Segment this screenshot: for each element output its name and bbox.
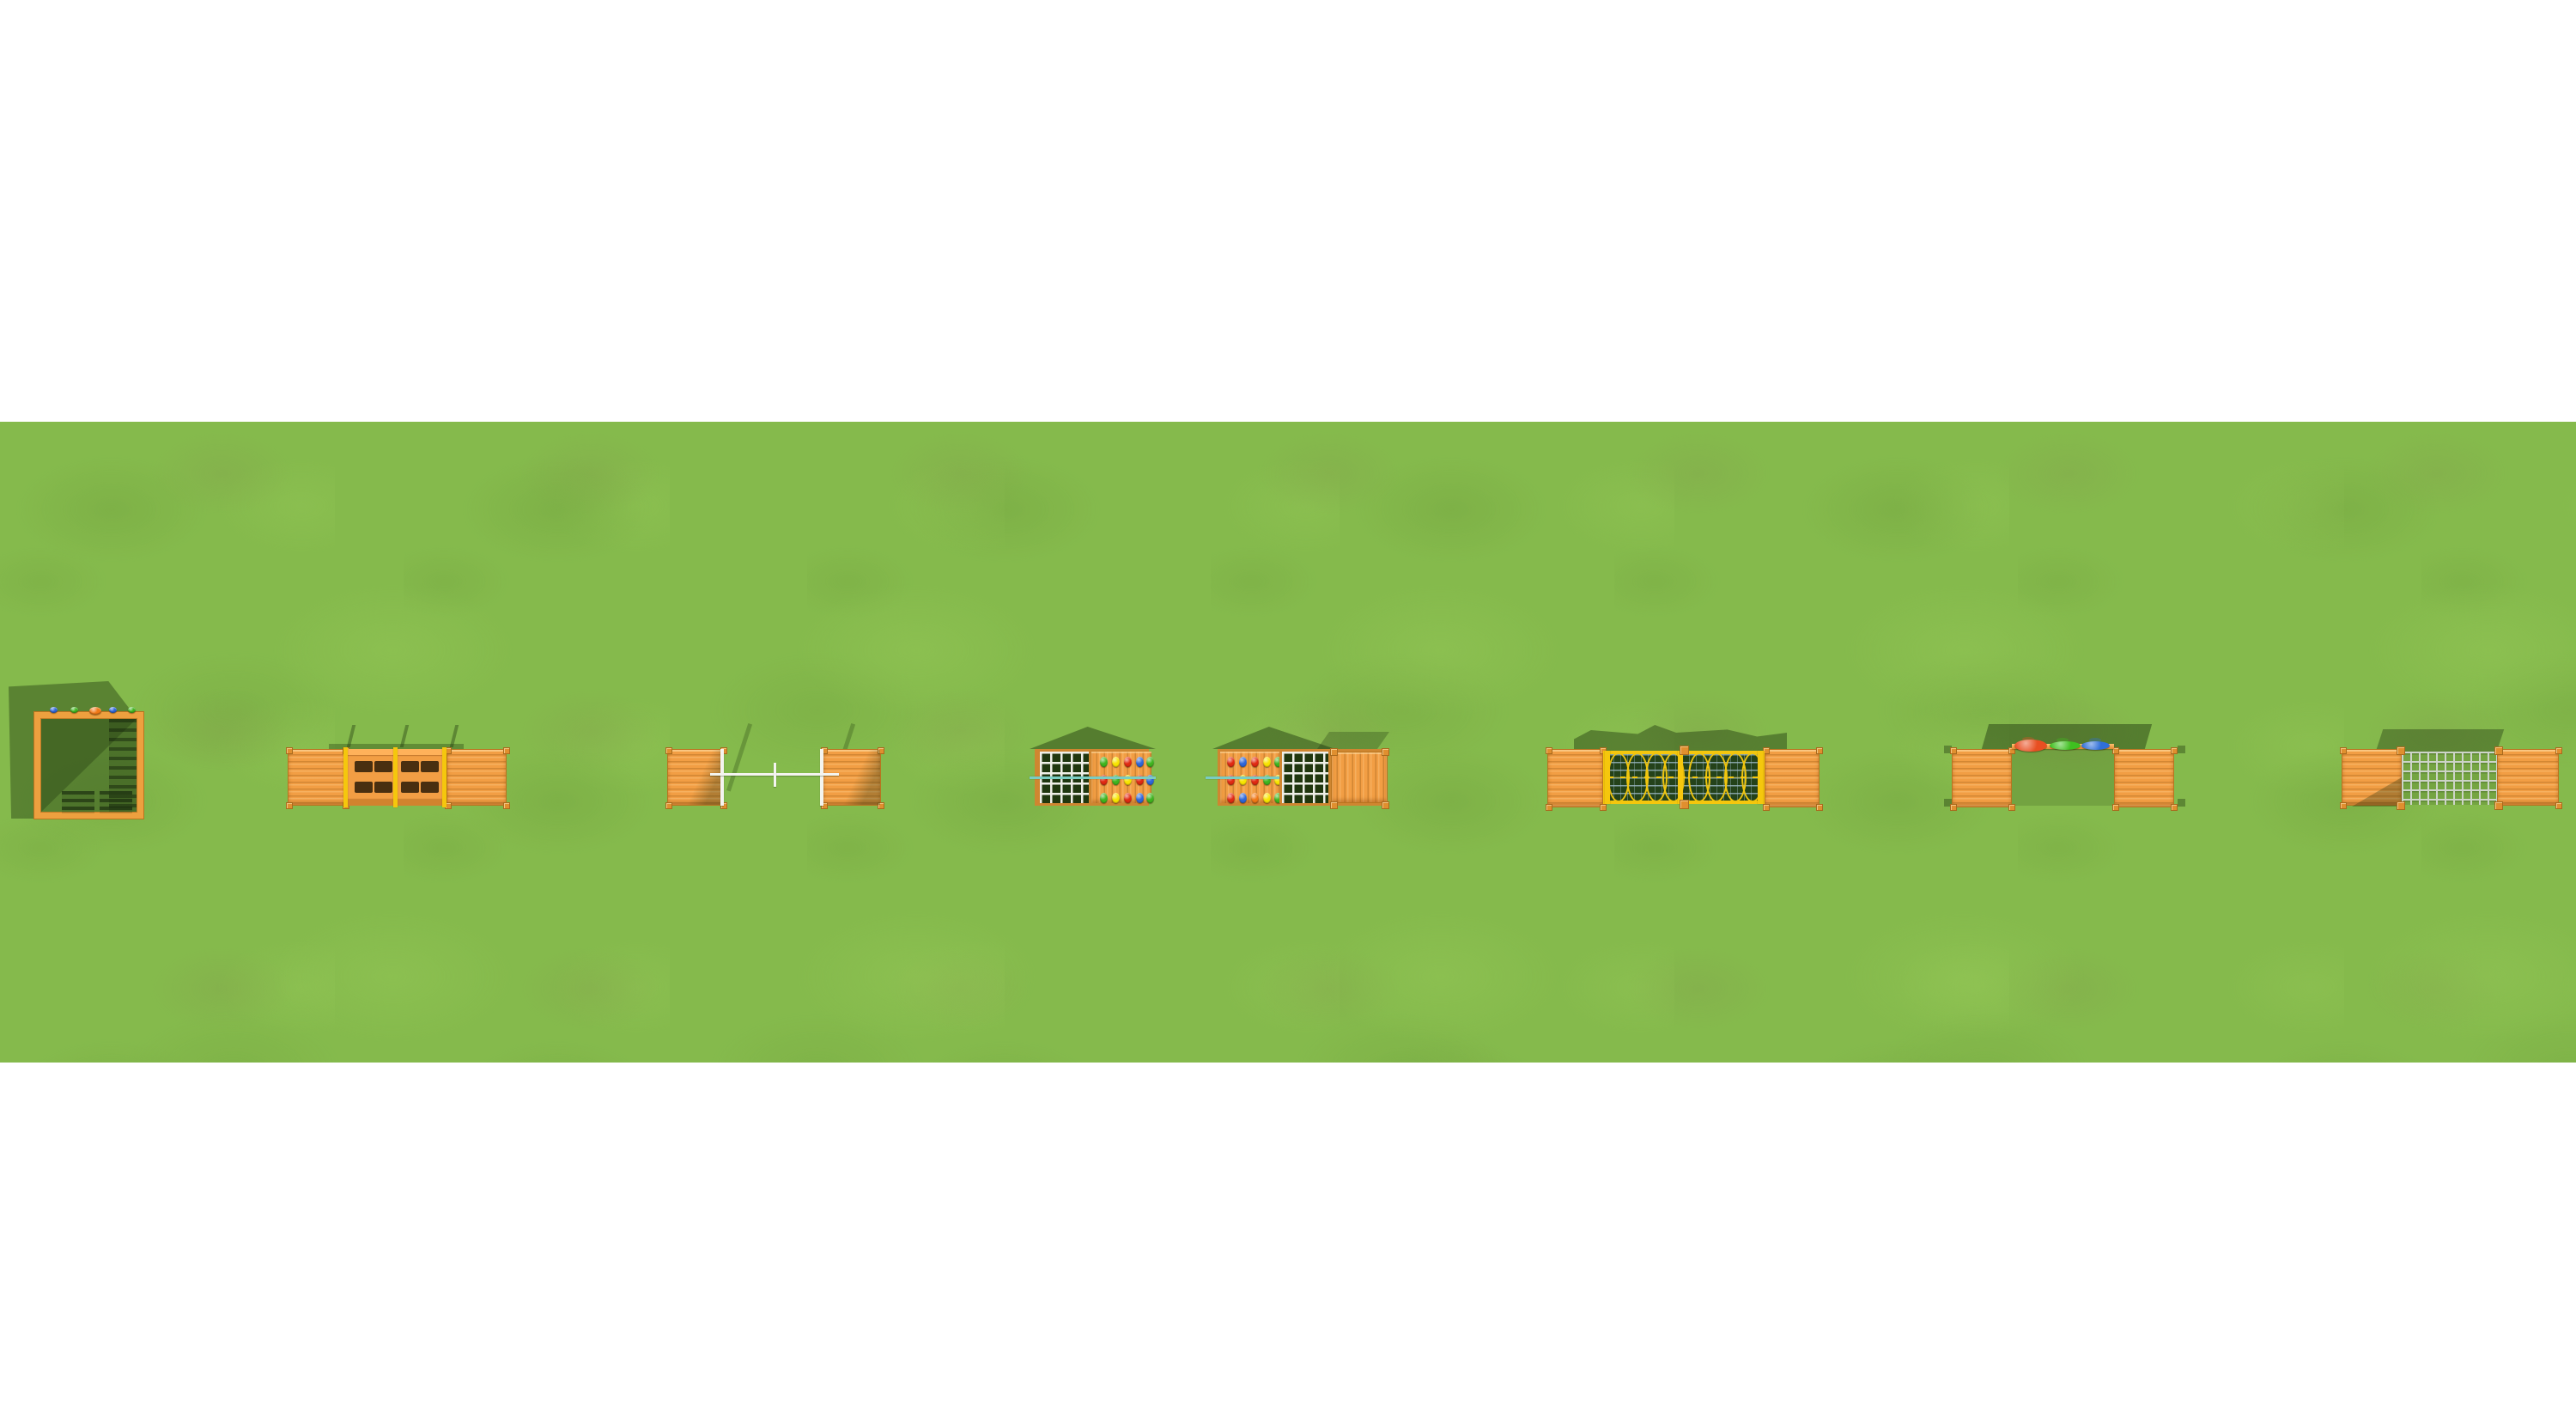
climbing-hold-green [1263, 775, 1271, 785]
wooden-platform [1952, 749, 2012, 807]
tunnel-post [1680, 800, 1689, 809]
tunnel-hoop [1724, 752, 1747, 802]
rung-gap [355, 782, 373, 793]
climbing-hold-blue [1239, 793, 1247, 803]
climbing-hold-blue [1136, 793, 1144, 803]
equipment-net-holds-wall[interactable] [0, 0, 2576, 1425]
post-shadow [2178, 799, 2185, 807]
bridge-top-shadow [329, 744, 464, 750]
render-viewport [0, 0, 2576, 1425]
wooden-platform [2342, 749, 2402, 806]
corner-post [1546, 804, 1552, 811]
climbing-hold-yellow [1112, 757, 1120, 767]
equipment-tunnel-bridge[interactable] [0, 0, 2576, 1425]
tunnel-rib [1678, 751, 1683, 804]
corner-post [2398, 747, 2405, 754]
climbing-hold-orange [1251, 793, 1259, 803]
climbing-hold-red [1227, 757, 1235, 767]
rung-shadow-b [100, 791, 132, 813]
corner-post [2340, 802, 2347, 809]
aframe-block [1218, 749, 1385, 806]
corner-post [2171, 804, 2178, 811]
climbing-hold-panel [1091, 752, 1151, 803]
climbing-hold-yellow [1124, 775, 1132, 785]
rung-shadow-a [62, 791, 94, 813]
tunnel-hoop [1645, 752, 1668, 802]
climbing-hold-red [1251, 757, 1259, 767]
corner-post [1600, 747, 1607, 754]
post-shadow [2178, 746, 2185, 753]
corner-post [1330, 801, 1338, 809]
climbing-hold-green [1100, 793, 1108, 803]
corner-post [286, 802, 293, 809]
beam-shadow [1982, 724, 2152, 749]
climbing-hold-green [1274, 757, 1282, 767]
corner-post [2555, 747, 2562, 754]
climbing-hold-green [1146, 793, 1154, 803]
ridge-line [1206, 776, 1279, 779]
post-shadow [1944, 746, 1952, 753]
climbing-hold-red [1124, 793, 1132, 803]
corner-post [286, 747, 293, 754]
rope-center-cross [774, 763, 776, 787]
climbing-hold-blue [109, 707, 117, 713]
climbing-hold-red [1100, 775, 1108, 785]
climbing-hold-green [70, 707, 78, 713]
climbing-hold-yellow [1239, 775, 1247, 785]
net-corner-post [2494, 801, 2503, 810]
wooden-platform [2114, 749, 2174, 807]
corner-post [445, 802, 452, 809]
net-corner-shadow [2352, 777, 2402, 807]
equipment-climb-cube[interactable] [0, 0, 2576, 1425]
rung-gap [355, 761, 373, 772]
climbing-hold-blue [1146, 775, 1154, 785]
platform-shade [668, 750, 723, 805]
equipment-rung-bridge[interactable] [0, 0, 2576, 1425]
tunnel-hoop [1688, 752, 1710, 802]
wooden-platform [2497, 749, 2559, 806]
tunnel-hoop [1741, 752, 1764, 802]
climbing-hold-red [1227, 775, 1235, 785]
corner-post [2008, 804, 2015, 811]
wooden-platform [667, 749, 724, 806]
aframe-peak-shadow [1212, 727, 1335, 749]
platform-shade [823, 750, 880, 805]
pod-shadow-speck [2022, 737, 2034, 741]
corner-post [2495, 802, 2502, 809]
tunnel-rib [1605, 751, 1610, 804]
wooden-platform [1547, 749, 1603, 807]
corner-post [1816, 747, 1823, 754]
corner-post [1816, 804, 1823, 811]
rung-gap [401, 761, 419, 772]
tunnel-post [1680, 746, 1689, 755]
corner-post [445, 747, 452, 754]
yellow-post [343, 747, 348, 807]
climbing-hold-blue [50, 707, 58, 713]
climbing-hold-red [1251, 775, 1259, 785]
corner-post [878, 747, 884, 754]
climbing-hold-red [1136, 775, 1144, 785]
white-post [720, 749, 724, 806]
corner-post [2555, 802, 2562, 809]
flat-net [2402, 752, 2497, 805]
corner-post [503, 747, 510, 754]
pole-shadow [450, 725, 459, 747]
ridge-line [1030, 776, 1156, 779]
corner-post [878, 802, 884, 809]
corner-post [1763, 804, 1770, 811]
equipment-net-crawl[interactable] [0, 0, 2576, 1425]
pole-shadow [347, 725, 355, 747]
post-shadow [1944, 799, 1952, 807]
corner-post [2171, 747, 2178, 754]
climbing-hold-green [128, 707, 136, 713]
corner-post [1600, 804, 1607, 811]
wooden-platform [1765, 749, 1820, 807]
corner-post [1546, 747, 1552, 754]
corner-post [1330, 748, 1338, 756]
equipment-beam-bridge[interactable] [0, 0, 2576, 1425]
tunnel-shadow [1574, 725, 1787, 751]
rope-net-panel [1037, 752, 1091, 803]
pole-shadow [726, 723, 752, 792]
net-tunnel [1603, 751, 1765, 804]
yellow-post [393, 747, 398, 807]
corner-post [2495, 747, 2502, 754]
aframe-block [1035, 749, 1149, 806]
equipment-holds-net-ramp[interactable] [0, 0, 2576, 1425]
corner-post [343, 802, 349, 809]
tunnel-hoop [1662, 752, 1685, 802]
climbing-hold-green [1112, 775, 1120, 785]
corner-post [2008, 747, 2015, 754]
corner-post [1382, 748, 1389, 756]
rung-deck [346, 749, 447, 806]
rope-net-panel [1279, 752, 1331, 803]
tunnel-hoop [1705, 752, 1728, 802]
tunnel-ridge-rope [1608, 776, 1759, 778]
ground-shade [2012, 749, 2114, 806]
climbing-hold-red [1227, 793, 1235, 803]
net-corner-post [2397, 746, 2405, 755]
corner-post [720, 802, 727, 809]
corner-post [2398, 802, 2405, 809]
climbing-hold-green [1100, 757, 1108, 767]
corner-post [1950, 747, 1957, 754]
climbing-hold-panel [1220, 752, 1279, 803]
corner-post [821, 802, 828, 809]
net-corner-post [2397, 801, 2405, 810]
tunnel-hoop [1607, 752, 1630, 802]
balance-rope [710, 773, 839, 776]
rung-gap [401, 782, 419, 793]
yellow-post [442, 747, 447, 807]
equipment-rope-bridge[interactable] [0, 0, 2576, 1425]
wooden-platform [823, 749, 881, 806]
white-post [820, 749, 823, 806]
net-shadow-band [2376, 729, 2504, 752]
ladder-shadow-right [109, 719, 137, 812]
corner-post [665, 747, 672, 754]
climbing-hold-green [1274, 793, 1282, 803]
corner-post [2112, 804, 2119, 811]
cube-shadow [9, 681, 140, 819]
climbing-hold-yellow [1263, 757, 1271, 767]
corner-post [720, 747, 727, 754]
stepping-pod-red [2014, 740, 2047, 752]
rung-gap [374, 761, 392, 772]
stepping-pod-green [2050, 741, 2081, 750]
climbing-hold-blue [1136, 757, 1144, 767]
rung-gap [421, 761, 439, 772]
pod-shadow-speck [2057, 738, 2069, 742]
rung-gap [374, 782, 392, 793]
wide-platform [1331, 752, 1388, 803]
corner-post [2112, 747, 2119, 754]
wooden-platform [288, 749, 346, 806]
corner-post [1382, 801, 1389, 809]
cube-frame [34, 712, 143, 819]
stepping-pod-blue [2081, 741, 2110, 750]
climbing-hold-green [1146, 757, 1154, 767]
net-corner-post [2494, 746, 2503, 755]
equipment-row [0, 0, 2576, 1425]
tunnel-rib [1758, 751, 1763, 804]
cube-inner-shadow [34, 712, 143, 819]
corner-post [821, 747, 828, 754]
corner-post [665, 802, 672, 809]
aframe-side-shadow [1317, 732, 1389, 749]
pole-shadow [829, 723, 855, 792]
climbing-hold-blue [1239, 757, 1247, 767]
pole-shadow [400, 725, 409, 747]
rung-gap [421, 782, 439, 793]
climbing-hold-red [1124, 757, 1132, 767]
climbing-hold-yellow [1263, 793, 1271, 803]
corner-post [1763, 747, 1770, 754]
beam-rail [2012, 744, 2114, 749]
wooden-platform [447, 749, 507, 806]
corner-post [2340, 747, 2347, 754]
corner-post [343, 747, 349, 754]
climbing-hold-yellow [1274, 775, 1282, 785]
climbing-hold-yellow [1112, 793, 1120, 803]
tunnel-hoop [1626, 752, 1649, 802]
corner-post [503, 802, 510, 809]
pod-shadow-speck [2089, 738, 2101, 742]
aframe-peak-shadow [1030, 727, 1156, 749]
climbing-hold-orange [89, 707, 101, 715]
corner-post [1950, 804, 1957, 811]
